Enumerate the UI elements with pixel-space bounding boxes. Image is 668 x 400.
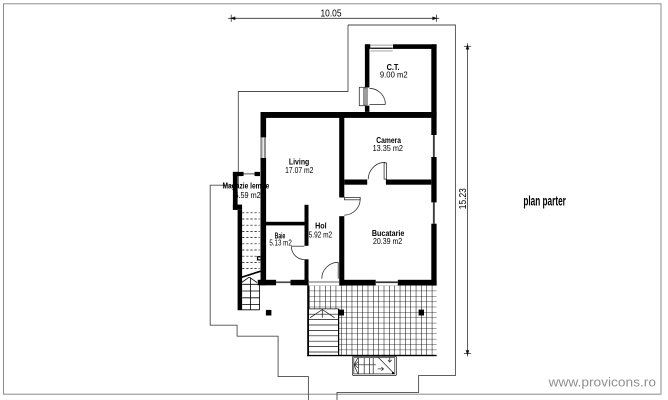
svg-text:www.provicons.ro: www.provicons.ro <box>548 375 656 390</box>
svg-text:5.13 m2: 5.13 m2 <box>269 237 292 247</box>
svg-text:17.07 m2: 17.07 m2 <box>285 165 314 175</box>
svg-text:plan parter: plan parter <box>523 193 566 208</box>
svg-text:13.35 m2: 13.35 m2 <box>373 143 404 153</box>
svg-text:9.00 m2: 9.00 m2 <box>380 70 408 80</box>
svg-text:20.39 m2: 20.39 m2 <box>373 236 402 246</box>
svg-text:10.05: 10.05 <box>321 7 342 19</box>
svg-text:5.92 m2: 5.92 m2 <box>309 230 333 240</box>
svg-text:6.59 m2: 6.59 m2 <box>234 190 261 200</box>
svg-text:15.23: 15.23 <box>457 188 469 209</box>
